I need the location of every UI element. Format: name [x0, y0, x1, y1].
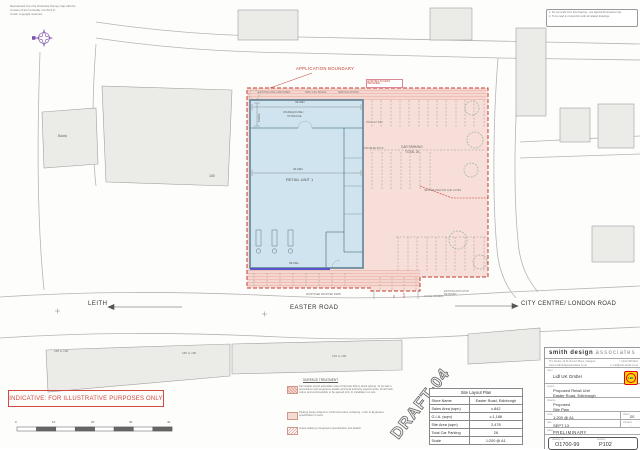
firm-email: e. mail@sda-studio.co.uk [610, 364, 638, 367]
drawn-label: drawn [623, 413, 630, 416]
dimension-top: 39.09m [295, 101, 305, 104]
row-value: 1:200 @ A1 [469, 437, 522, 445]
legend-swatch-2 [287, 412, 298, 420]
note-line-2: 2. To be read in conjunction with all re… [549, 16, 639, 19]
annotation-access: EXISTING ACCESS RETAINED [366, 79, 403, 88]
row-value: Easter Road, Edinburgh [469, 397, 522, 405]
annotation-fence: NEW 1.8m FENCE [305, 92, 326, 95]
indicative-note-text: INDICATIVE: FOR ILLUSTRATIVE PURPOSES ON… [9, 396, 162, 402]
drawing-row: drawing Proposed Site Plan [545, 398, 640, 412]
drawing-number-row: drawing no revision O1700-99 P102 [545, 435, 640, 449]
title-block: smith design associates The Studio, 24 S… [544, 347, 640, 449]
row-value: c.1,186 [469, 413, 522, 421]
drawing-number: O1700-99 [555, 442, 579, 448]
site-data-table: Site Layout Plan Store NameEaster Road, … [429, 388, 523, 445]
table-row: Store NameEaster Road, Edinburgh [430, 397, 523, 405]
status-value: PRELIMINARY [553, 430, 587, 435]
building-label-row1: 188 to 196 [54, 350, 68, 353]
firm-address-2: www.smithdesignassociates.co.uk [549, 364, 587, 367]
client-name: Lidl UK GmbH [553, 374, 582, 379]
table-row: G.I.A. (sqm)c.1,186 [430, 413, 523, 421]
building-label-row2: 180 to 186 [182, 352, 196, 355]
drawn-cell: drawn DS [620, 412, 640, 419]
firm-name-row: smith design associates [545, 348, 640, 359]
row-label: Store Name [430, 397, 470, 405]
annotation-secure-fencing: SECURE FENCING AND GATES [424, 190, 461, 193]
table-row: Total Car Parking26 [430, 429, 523, 437]
row-label: Total Car Parking [430, 429, 470, 437]
dimension-mid: 31.09m [293, 168, 303, 171]
general-notes-box: 1. Do not scale from this drawing - use … [546, 9, 638, 27]
table-title-row: Site Layout Plan [430, 389, 523, 397]
os-copyright-line3: Crown copyright reserved. [10, 13, 43, 16]
scale-bar [17, 427, 172, 431]
date-label: date [547, 421, 552, 424]
lamp-post-symbols [55, 309, 267, 317]
scalebar-tick-0: 0 [15, 421, 17, 424]
warehouse-label-line2: STORAGE [287, 115, 302, 118]
lidl-logo-text: LIDL [628, 377, 634, 380]
scale-value: 1:200 @ A1 [553, 415, 574, 420]
scalebar-tick-40: 40 [167, 421, 170, 424]
legend-item-2: Parking areas subject to confirmed colou… [299, 411, 399, 417]
retail-unit-label: RETAIL UNIT 1 [286, 178, 313, 183]
row-label: Scale [430, 437, 470, 445]
dimension-left: 5.00m [258, 114, 261, 122]
legend-heading: SURFACE TREATMENT [303, 379, 338, 383]
row-value: c.842 [469, 405, 522, 413]
annotation-service: SERVICE DOORS [338, 92, 359, 95]
road-label-city-centre: CITY CENTRE/ LONDON ROAD [521, 301, 616, 308]
table-row: Site Area (sqm)2,478 [430, 421, 523, 429]
firm-name-bold: smith design [549, 350, 593, 356]
date-row: date SEPT 13 checked - [545, 420, 640, 428]
status-row: status PRELIMINARY [545, 428, 640, 435]
legend-item-1: Permeable paved adoptable area (Charcoal… [299, 385, 399, 394]
scale-label: scale [547, 413, 553, 416]
annotation-dropped-kerb: PROPOSED DROPPED KERB [306, 294, 341, 297]
project-line2: Easter Road, Edinburgh [553, 393, 596, 398]
table-title: Site Layout Plan [430, 389, 523, 397]
legend-swatch-1 [287, 386, 298, 394]
drawn-value: DS [630, 415, 634, 419]
date-value: SEPT 13 [553, 423, 569, 428]
annotation-wall: EXISTING WALL RETAINED [258, 92, 290, 95]
revision-number: P102 [599, 442, 612, 448]
scale-row: scale 1:200 @ A1 drawn DS [545, 412, 640, 420]
firm-contact-row: The Studio, 24 St Vincent Place, Glasgow… [545, 359, 640, 368]
retail-building [250, 100, 363, 269]
building-label-bank: Bank [58, 134, 67, 139]
application-boundary-label: APPLICATION BOUNDARY [296, 67, 354, 72]
table-row: Sales Area (sqm)c.842 [430, 405, 523, 413]
drawing-sheet: Reproduced from the Ordnance Survey map … [0, 0, 640, 448]
row-label: Site Area (sqm) [430, 421, 470, 429]
table-row: Scale1:200 @ A1 [430, 437, 523, 445]
annotation-trolley: TROLLEY BAY [366, 122, 383, 125]
annotation-cycle: CYCLE STANDS [424, 296, 443, 299]
scalebar-tick-10: 10 [52, 421, 55, 424]
drawing-line2: Site Plan [553, 407, 569, 412]
road-label-leith: LEITH [88, 301, 108, 308]
indicative-note-box: INDICATIVE: FOR ILLUSTRATIVE PURPOSES ON… [8, 390, 164, 407]
lidl-logo: LIDL [624, 371, 638, 385]
row-value: 2,478 [469, 421, 522, 429]
building-label-row3: 156 to 168 [332, 355, 346, 358]
annotation-disabled: DISABLED BAYS [364, 148, 384, 151]
road-label-easter-road: EASTER ROAD [290, 305, 339, 312]
checked-cell: checked - [620, 420, 640, 427]
north-arrow-icon [32, 30, 52, 46]
checked-value: - [630, 423, 631, 427]
boundary-leader-line [270, 73, 312, 88]
row-label: Sales Area (sqm) [430, 405, 470, 413]
row-label: G.I.A. (sqm) [430, 413, 470, 421]
lidl-logo-ring: LIDL [626, 373, 636, 383]
firm-name-light: associates [596, 350, 636, 356]
client-row: client Lidl UK GmbH LIDL [545, 368, 640, 384]
annotation-out: OUT [404, 293, 407, 298]
annotation-bus-stop: EXISTING BUS STOP RETAINED [444, 291, 478, 297]
scalebar-tick-30: 30 [129, 421, 132, 424]
project-row: project Proposed Retail Unit Easter Road… [545, 384, 640, 398]
annotation-in: IN [394, 296, 397, 299]
client-label: client [547, 369, 553, 372]
building-label-180: 180 [209, 174, 215, 178]
scalebar-tick-20: 20 [91, 421, 94, 424]
hatched-frontage-strip [248, 270, 420, 287]
carpark-label-line2: TOTAL 26 [405, 151, 419, 155]
legend-item-3: Areas relating to Engineers specificatio… [299, 427, 399, 430]
legend-swatch-3 [287, 427, 298, 435]
dimension-bottom: 39.09m [289, 262, 299, 265]
row-value: 26 [469, 429, 522, 437]
